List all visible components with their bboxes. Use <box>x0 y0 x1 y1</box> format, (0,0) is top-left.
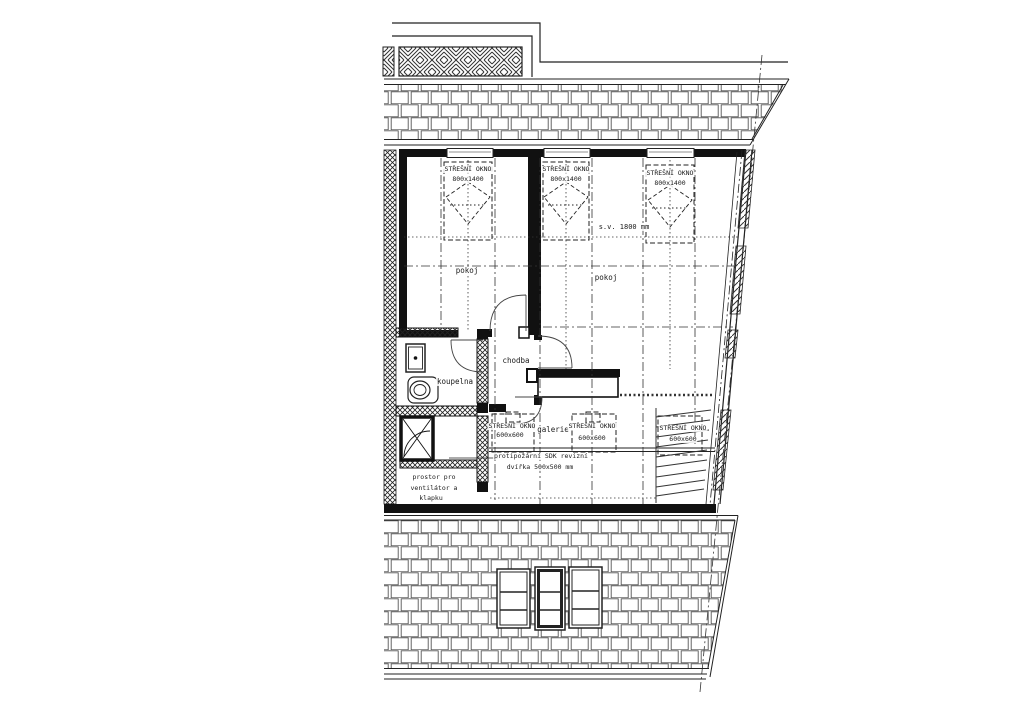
dormer-windows <box>497 567 602 630</box>
fire-access-note: dvířka 500x500 mm <box>506 464 575 471</box>
roof-window-label: STŘEŠNÍ OKNO <box>488 423 537 430</box>
roof-window-size: 800x1400 <box>451 176 484 183</box>
roof-window-label: STŘEŠNÍ OKNO <box>568 423 617 430</box>
fire-access-note: protipožární SDK revizní <box>493 453 589 460</box>
vent-space-note: ventilátor a <box>410 485 459 492</box>
room-label-koupelna: koupelna <box>436 378 474 386</box>
room-label-galerie: galerie <box>536 426 570 434</box>
floor-plan-page: STŘEŠNÍ OKNO 800x1400 STŘEŠNÍ OKNO 800x1… <box>0 0 1024 713</box>
toilet <box>408 377 438 403</box>
roof-window-label: STŘEŠNÍ OKNO <box>646 170 695 177</box>
roof-window-size: 600x600 <box>577 435 606 442</box>
roof-window-size: 800x1400 <box>549 176 582 183</box>
room-label-chodba: chodba <box>501 357 530 365</box>
room-label-pokoj-left: pokoj <box>455 267 480 275</box>
upper-roof <box>384 79 789 145</box>
vent-space-note: prostor pro <box>411 474 456 481</box>
room-label-pokoj-right: pokoj <box>594 274 619 282</box>
terrace-paving-stub <box>383 47 394 76</box>
vent-space-note: klapku <box>418 495 443 502</box>
vent-shaft <box>401 417 433 460</box>
sink <box>406 344 425 372</box>
ceiling-height-note: s.v. 1800 mm <box>598 224 651 231</box>
roof-window-size: 600x600 <box>668 436 697 443</box>
roof-window-size: 600x600 <box>495 432 524 439</box>
terrace-paving <box>399 47 522 76</box>
roof-window-label: STŘEŠNÍ OKNO <box>542 166 591 173</box>
roof-window-label: STŘEŠNÍ OKNO <box>444 166 493 173</box>
roof-window-label: STŘEŠNÍ OKNO <box>659 425 708 432</box>
roof-window-size: 800x1400 <box>653 180 686 187</box>
